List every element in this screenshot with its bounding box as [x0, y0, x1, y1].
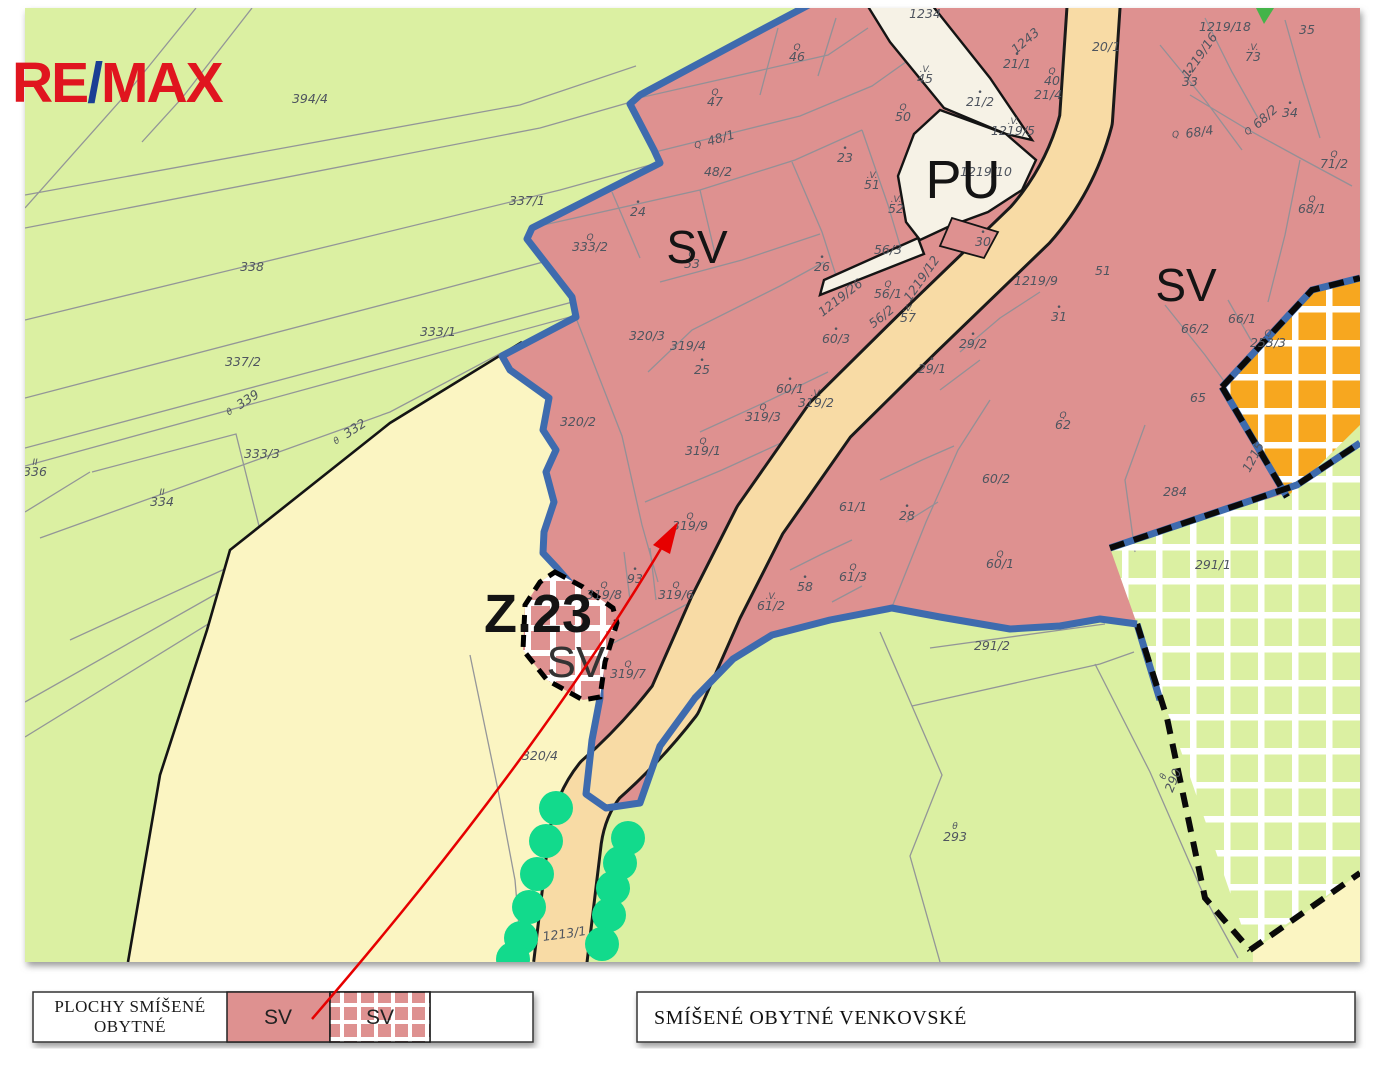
svg-text:61/1: 61/1	[839, 499, 867, 514]
svg-text:Q: Q	[600, 581, 607, 591]
svg-text:Q: Q	[1330, 150, 1337, 160]
svg-text:Q: Q	[793, 43, 800, 53]
svg-text:•: •	[833, 325, 838, 335]
svg-text:•: •	[802, 573, 807, 583]
svg-text:•: •	[787, 375, 792, 385]
parcel-label: 1234	[909, 6, 941, 21]
svg-text:•: •	[1056, 303, 1061, 313]
svg-text:338: 338	[240, 259, 264, 274]
legend: PLOCHY SMÍŠENÉ OBYTNÉ SV SV SMÍŠENÉ OBYT…	[33, 992, 1355, 1042]
svg-text:Q: Q	[1048, 67, 1055, 77]
svg-text:56/3: 56/3	[874, 242, 902, 257]
svg-text:Q: Q	[1171, 130, 1179, 141]
parcel-label: 7	[16, 672, 24, 687]
parcel-label: 56/3	[874, 242, 902, 257]
svg-text:Q: Q	[672, 581, 679, 591]
svg-text:Q: Q	[711, 88, 718, 98]
svg-text:II: II	[159, 488, 165, 498]
svg-text:.V.: .V.	[766, 592, 777, 602]
svg-text:•: •	[635, 198, 640, 208]
svg-text:66/1: 66/1	[1228, 311, 1256, 326]
svg-text:51: 51	[1095, 263, 1111, 278]
parcel-label: 333/1	[420, 324, 456, 339]
svg-text:291/1: 291/1	[1195, 557, 1231, 572]
zone-label: PU	[925, 150, 1000, 210]
svg-text:•: •	[1187, 68, 1192, 78]
svg-text:.V.: .V.	[920, 65, 931, 75]
parcel-label: 1219/9	[1014, 273, 1058, 288]
svg-text:284: 284	[1163, 484, 1187, 499]
svg-text:Q: Q	[849, 563, 856, 573]
parcel-label: 333/3	[244, 446, 280, 461]
parcel-label: 65	[1190, 390, 1206, 405]
parcel-label: 71	[1362, 216, 1378, 231]
svg-text:319/4: 319/4	[670, 338, 706, 353]
zoning-plan-page: 394/4338337/1333/1337/2339θ332θ333/3336I…	[0, 0, 1385, 1080]
svg-text:•: •	[904, 502, 909, 512]
svg-text:Q: Q	[996, 550, 1003, 560]
remax-logo: RE/MAX	[12, 51, 224, 115]
svg-text:333/1: 333/1	[420, 324, 456, 339]
svg-text:•: •	[699, 356, 704, 366]
svg-text:Q: Q	[899, 103, 906, 113]
parcel-label: 35	[1299, 22, 1315, 37]
parcel-label: 66/2	[1181, 321, 1209, 336]
svg-text:Q: Q	[624, 660, 631, 670]
zone-label: Z.23	[484, 584, 592, 644]
svg-text:Q: Q	[884, 280, 891, 290]
svg-text:.V.: .V.	[867, 171, 878, 181]
parcel-label: 61/1	[839, 499, 867, 514]
svg-text:337/2: 337/2	[225, 354, 261, 369]
parcel-label: 48/2	[704, 164, 732, 179]
parcel-label: 291/2	[974, 638, 1010, 653]
zoning-map-svg: 394/4338337/1333/1337/2339θ332θ333/3336I…	[0, 0, 1385, 1080]
svg-text:291/2: 291/2	[974, 638, 1010, 653]
svg-text:320/3: 320/3	[629, 328, 665, 343]
svg-text:.V.: .V.	[891, 195, 902, 205]
svg-text:•: •	[1287, 99, 1292, 109]
svg-text:1219/9: 1219/9	[1014, 273, 1058, 288]
svg-text:θ: θ	[952, 822, 958, 832]
svg-text:Q: Q	[759, 403, 766, 413]
svg-text:.V.: .V.	[1008, 117, 1019, 127]
svg-text:60/2: 60/2	[982, 471, 1010, 486]
svg-text:Q: Q	[686, 512, 693, 522]
svg-text:Q: Q	[699, 437, 706, 447]
svg-text:333/3: 333/3	[244, 446, 280, 461]
legend-title-line1: PLOCHY SMÍŠENÉ	[54, 997, 205, 1016]
parcel-label: 338	[240, 259, 264, 274]
svg-text:•: •	[970, 330, 975, 340]
svg-text:•: •	[977, 88, 982, 98]
svg-text:35: 35	[1299, 22, 1315, 37]
svg-text:•: •	[632, 565, 637, 575]
svg-text:Q: Q	[1059, 411, 1066, 421]
parcel-label: 394/4	[292, 91, 328, 106]
svg-text:•: •	[980, 228, 985, 238]
svg-text:.V.: .V.	[1248, 43, 1259, 53]
parcel-label: 337/2	[225, 354, 261, 369]
parcel-label: 60/2	[982, 471, 1010, 486]
svg-text:II: II	[32, 458, 38, 468]
svg-text:71: 71	[1362, 216, 1378, 231]
svg-text:66/2: 66/2	[1181, 321, 1209, 336]
svg-text:394/4: 394/4	[292, 91, 328, 106]
legend-swatch1-label: SV	[264, 1006, 292, 1029]
legend-title-line2: OBYTNÉ	[94, 1017, 166, 1036]
parcel-label: 66/1	[1228, 311, 1256, 326]
svg-text:•: •	[842, 144, 847, 154]
svg-text:.V.: .V.	[811, 389, 822, 399]
svg-text:1234: 1234	[909, 6, 941, 21]
svg-text:Q: Q	[1264, 329, 1271, 339]
parcel-label: 284	[1163, 484, 1187, 499]
svg-text:21/4: 21/4	[1034, 87, 1062, 102]
svg-text:7: 7	[16, 672, 24, 687]
parcel-label: 319/4	[670, 338, 706, 353]
parcel-label: 20/1	[1092, 39, 1120, 54]
svg-text:65: 65	[1190, 390, 1206, 405]
svg-text:320/2: 320/2	[560, 414, 596, 429]
parcel-label: 337/1	[509, 193, 545, 208]
svg-text:•: •	[819, 253, 824, 263]
svg-text:20/1: 20/1	[1092, 39, 1120, 54]
parcel-label: 320/2	[560, 414, 596, 429]
legend-swatch2-label: SV	[366, 1006, 394, 1029]
legend-right-label: SMÍŠENÉ OBYTNÉ VENKOVSKÉ	[654, 1005, 967, 1029]
svg-text:.V.: .V.	[903, 304, 914, 314]
svg-text:337/1: 337/1	[509, 193, 545, 208]
svg-text:Q: Q	[1308, 195, 1315, 205]
parcel-label: 320/3	[629, 328, 665, 343]
svg-text:48/2: 48/2	[704, 164, 732, 179]
zone-label: SV	[1155, 259, 1217, 311]
svg-text:•: •	[929, 355, 934, 365]
parcel-label: 291/1	[1195, 557, 1231, 572]
parcel-label: 51	[1095, 263, 1111, 278]
zone-label: SV	[666, 221, 728, 273]
parcel-label: 21/4	[1034, 87, 1062, 102]
svg-text:Q: Q	[586, 233, 593, 243]
